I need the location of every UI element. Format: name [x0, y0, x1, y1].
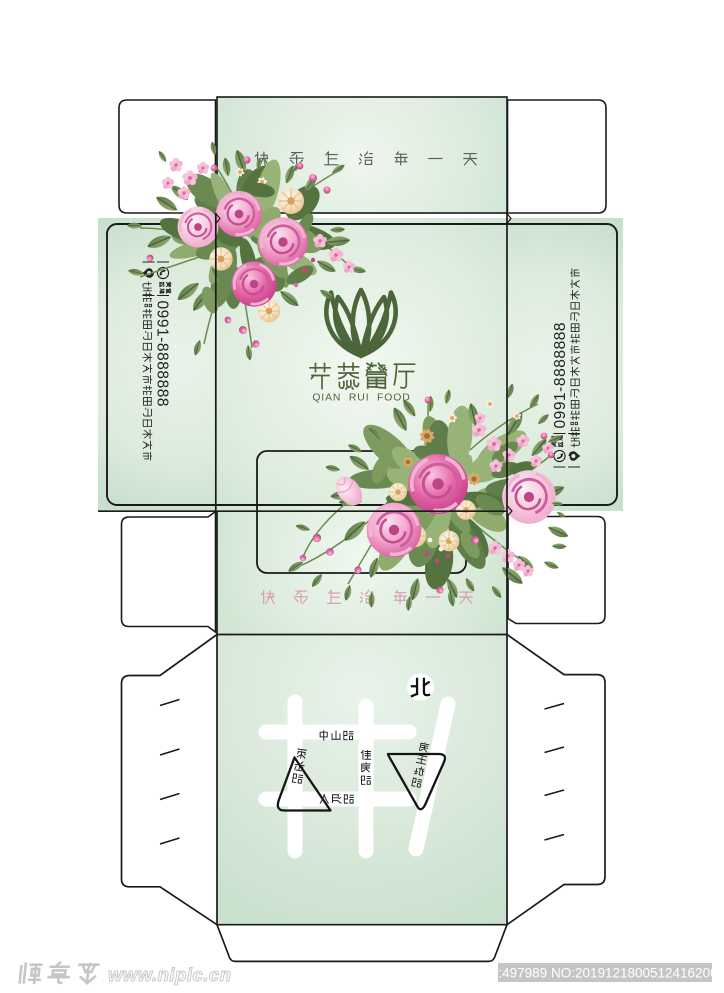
svg-text:ID:497989 NO:20191218005124162: ID:497989 NO:20191218005124162000	[485, 966, 724, 981]
svg-text:QIAN RUI FOOD: QIAN RUI FOOD	[312, 393, 410, 404]
svg-text:www.nipic.cn: www.nipic.cn	[108, 964, 232, 985]
